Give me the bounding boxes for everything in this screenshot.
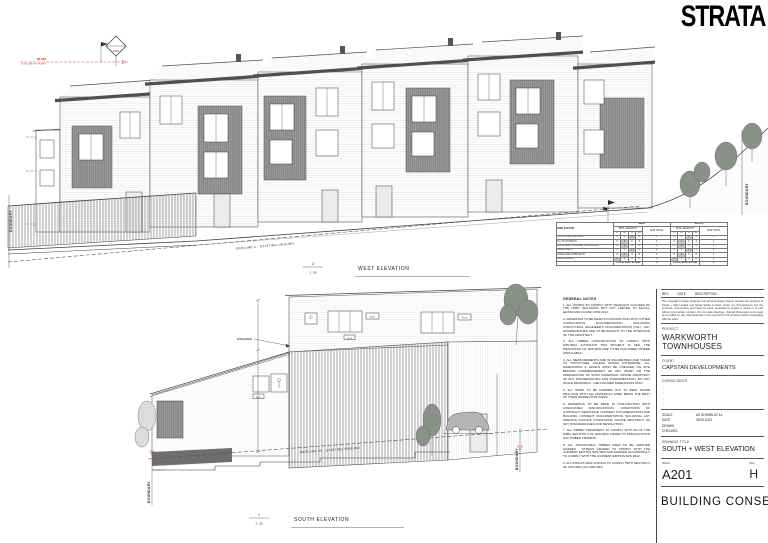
risk-factor-header: RISK FACTOR [557, 223, 614, 236]
risk-table-flag-icon: ⚑ [602, 206, 608, 214]
svg-text:28.638: 28.638 [37, 57, 47, 61]
notes-title: GENERAL NOTES [563, 297, 650, 301]
south-left-wing: W-01 [150, 352, 289, 456]
consultant-item: - [663, 401, 766, 405]
note-item: 5. ALL WORK TO BE CARRIED OUT TO BEST TR… [563, 389, 650, 401]
note-item: 8. ALL STRUCTURAL TIMBER USED TO BE VERI… [563, 444, 650, 460]
risk-row-total: TOTAL RISK SCORE 6 TOTAL RISK SCORE 6 [557, 262, 728, 266]
drawing-sheet: 8.281 28.638 U1 (PC) MAX ROOF APEX 24.93… [0, 0, 768, 543]
west-unit-3 [253, 46, 367, 222]
rev-column: REV [662, 292, 669, 296]
south-boundary-right-label: BOUNDARY [515, 448, 519, 470]
west-unit-5 [463, 32, 583, 212]
south-drawing-number: 1 [258, 513, 260, 517]
south-drawing-scale: 1 : 50 [255, 522, 263, 526]
note-item: 1. ALL WORKS TO COMPLY WITH RELEVANT CLA… [563, 304, 650, 316]
west-drawing-number: 2 [312, 262, 314, 266]
spreader-label: SPREADER [237, 337, 252, 341]
drawn-value [696, 424, 766, 428]
elevation-canvas: 8.281 28.638 U1 (PC) MAX ROOF APEX 24.93… [0, 0, 768, 543]
west-drawing-scale: 1 : 50 [309, 271, 317, 275]
level-max-roof-apex: 28.638 U1 (PC) MAX ROOF APEX [20, 57, 128, 65]
date-value: 28.06.2023 [696, 418, 766, 422]
svg-text:U1 (PC) MAX ROOF APEX: U1 (PC) MAX ROOF APEX [21, 62, 47, 65]
window-tag-w05: W-05 [347, 338, 353, 340]
description-column: DESCRIPTION [695, 292, 717, 296]
rev-label: Rev [749, 461, 758, 465]
risk-matrix-table: RISK FACTOR WEST SOUTH RISK SEVERITY SUB… [556, 222, 728, 266]
risk-subtotal-header-south: SUB TOTAL [700, 227, 728, 236]
south-elevation: W-01 W-07 W-06 W-05 [135, 284, 548, 528]
title-block: REV DATE DESCRIPTION The copyright in th… [656, 289, 766, 543]
west-elevation-title: 2 1 : 50 WEST ELEVATION [303, 262, 470, 277]
west-boundary-right-label: BOUNDARY [745, 183, 749, 205]
risk-subtotal-header-west: SUB TOTAL [643, 227, 670, 236]
note-item: 7. ALL TIMBER TREATMENT TO COMPLY WITH B… [563, 429, 650, 441]
datum-value: 8.281 [113, 50, 120, 53]
drawing-title: SOUTH + WEST ELEVATION [662, 446, 766, 453]
sheet-rev-row: Sheet A201 Rev H [662, 461, 758, 482]
south-elevation-title: 1 1 : 50 SOUTH ELEVATION [249, 513, 404, 528]
date-label: DATE [662, 418, 696, 422]
revision-header: REV DATE DESCRIPTION [661, 290, 766, 297]
project-label: PROJECT [662, 327, 766, 331]
copyright-note: The copyright in these drawings and all … [661, 298, 766, 323]
consultants-label: CONSULTANTS [662, 379, 766, 383]
checked-value [696, 429, 766, 433]
consultant-item: - [663, 390, 766, 394]
note-item: 4. ALL MEASUREMENTS ARE IN MILLIMETRES A… [563, 359, 650, 386]
checked-label: CHECKED [662, 429, 696, 433]
note-item: 2. DRAWINGS TO BE READ IN CONJUNCTION WI… [563, 318, 650, 337]
consultant-item: - [663, 396, 766, 400]
window-tag-w07: W-07 [370, 317, 376, 319]
window-tag-w06: W-06 [462, 318, 468, 320]
west-title: WEST ELEVATION [358, 266, 409, 272]
building-consent-stamp: BUILDING CONSENT [661, 496, 766, 508]
note-item: 6. DRAWINGS TO BE READ IN CONJUNCTION WI… [563, 403, 650, 426]
strata-logo: STRATA [681, 0, 765, 34]
datum-symbol: 8.281 [101, 36, 126, 66]
hillside: BOUNDARY [648, 123, 768, 215]
rev-value: H [749, 467, 758, 481]
note-item: 3. ALL TIMBER CONSTRUCTION TO COMPLY WIT… [563, 340, 650, 356]
scale-label: SCALE [662, 413, 696, 417]
south-title: SOUTH ELEVATION [294, 517, 349, 523]
general-notes: GENERAL NOTES 1. ALL WORKS TO COMPLY WIT… [563, 297, 650, 473]
drawn-label: DRAWN [662, 424, 696, 428]
sheet-meta: SCALE AS SHOWN AT A1 DATE 28.06.2023 DRA… [662, 413, 766, 434]
client-name: CAPSTAN DEVELOPMENTS [662, 365, 766, 371]
sheet-label: Sheet [662, 461, 692, 465]
west-gridline-label: GRIDLINE A - EXISTING GROUND [235, 241, 294, 250]
south-boundary-left-label: BOUNDARY [147, 481, 151, 503]
west-unit-4 [357, 38, 473, 217]
scale-value: AS SHOWN AT A1 [696, 413, 766, 417]
sheet-number: A201 [662, 467, 692, 482]
window-tag-w01: W-01 [256, 397, 262, 399]
consultant-item: - [663, 385, 766, 389]
client-label: CLIENT [662, 359, 766, 363]
note-item: 9. ALL STRUCTURAL FIXINGS TO COMPLY WITH… [563, 462, 650, 470]
west-unit-6 [573, 47, 655, 208]
drawing-title-label: DRAWING TITLE [662, 440, 766, 444]
project-name: WARKWORTH TOWNHOUSES [662, 333, 766, 351]
date-column: DATE [678, 292, 686, 296]
